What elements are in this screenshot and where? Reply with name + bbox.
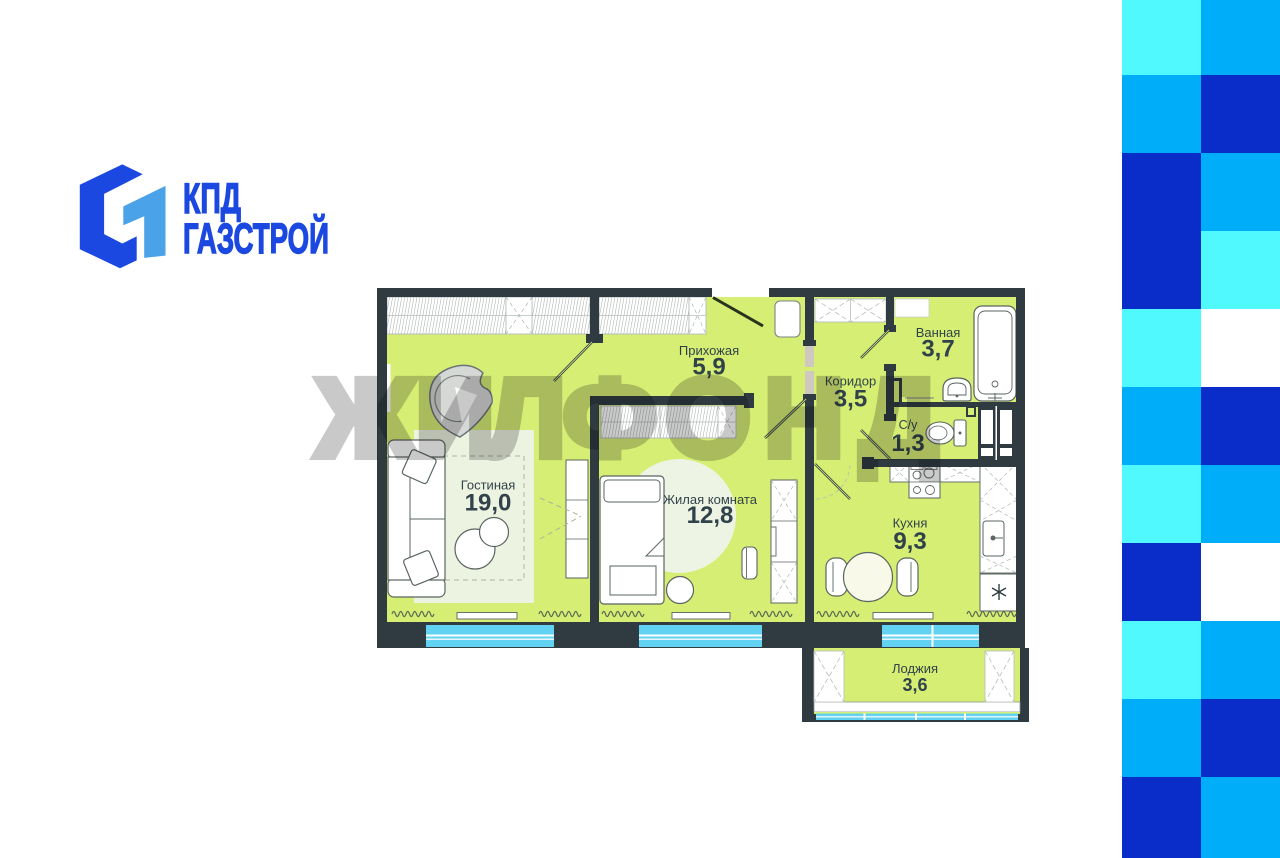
svg-text:И: И: [415, 357, 494, 480]
svg-text:Л: Л: [488, 357, 565, 480]
svg-text:3,6: 3,6: [902, 675, 927, 695]
svg-text:19,0: 19,0: [465, 490, 512, 517]
svg-text:О: О: [665, 357, 751, 480]
svg-text:12,8: 12,8: [687, 502, 734, 529]
svg-text:Ж: Ж: [315, 357, 416, 480]
svg-text:9,3: 9,3: [893, 528, 926, 555]
svg-text:Лоджия: Лоджия: [892, 661, 938, 676]
svg-text:ГАЗСТРОЙ: ГАЗСТРОЙ: [183, 214, 329, 263]
svg-text:Ф: Ф: [563, 357, 657, 480]
svg-text:Н: Н: [764, 357, 843, 480]
svg-text:Д: Д: [860, 357, 938, 480]
